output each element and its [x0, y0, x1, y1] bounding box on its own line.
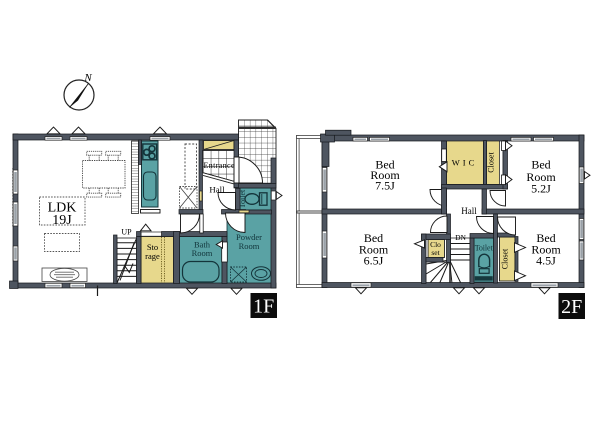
svg-text:Room: Room: [239, 241, 260, 251]
svg-text:19J: 19J: [52, 213, 72, 228]
svg-text:WIC: WIC: [452, 158, 478, 168]
svg-text:2F: 2F: [561, 296, 582, 318]
svg-text:UP: UP: [121, 228, 132, 237]
svg-text:Hall: Hall: [461, 206, 477, 216]
svg-text:DN: DN: [455, 233, 466, 242]
svg-text:Closet: Closet: [486, 152, 495, 173]
svg-text:Room: Room: [192, 248, 213, 258]
svg-text:N: N: [83, 72, 92, 84]
svg-text:5.2J: 5.2J: [531, 182, 551, 196]
svg-text:Toilet: Toilet: [475, 244, 494, 253]
svg-text:Entrance: Entrance: [204, 161, 235, 170]
svg-text:1F: 1F: [253, 296, 274, 318]
svg-text:rage: rage: [145, 251, 160, 261]
svg-text:Closet: Closet: [500, 248, 509, 269]
svg-text:4.5J: 4.5J: [536, 254, 556, 268]
svg-text:set: set: [431, 248, 440, 257]
svg-text:6.5J: 6.5J: [364, 254, 384, 268]
svg-text:Hall: Hall: [209, 185, 225, 195]
svg-text:7.5J: 7.5J: [375, 179, 395, 193]
